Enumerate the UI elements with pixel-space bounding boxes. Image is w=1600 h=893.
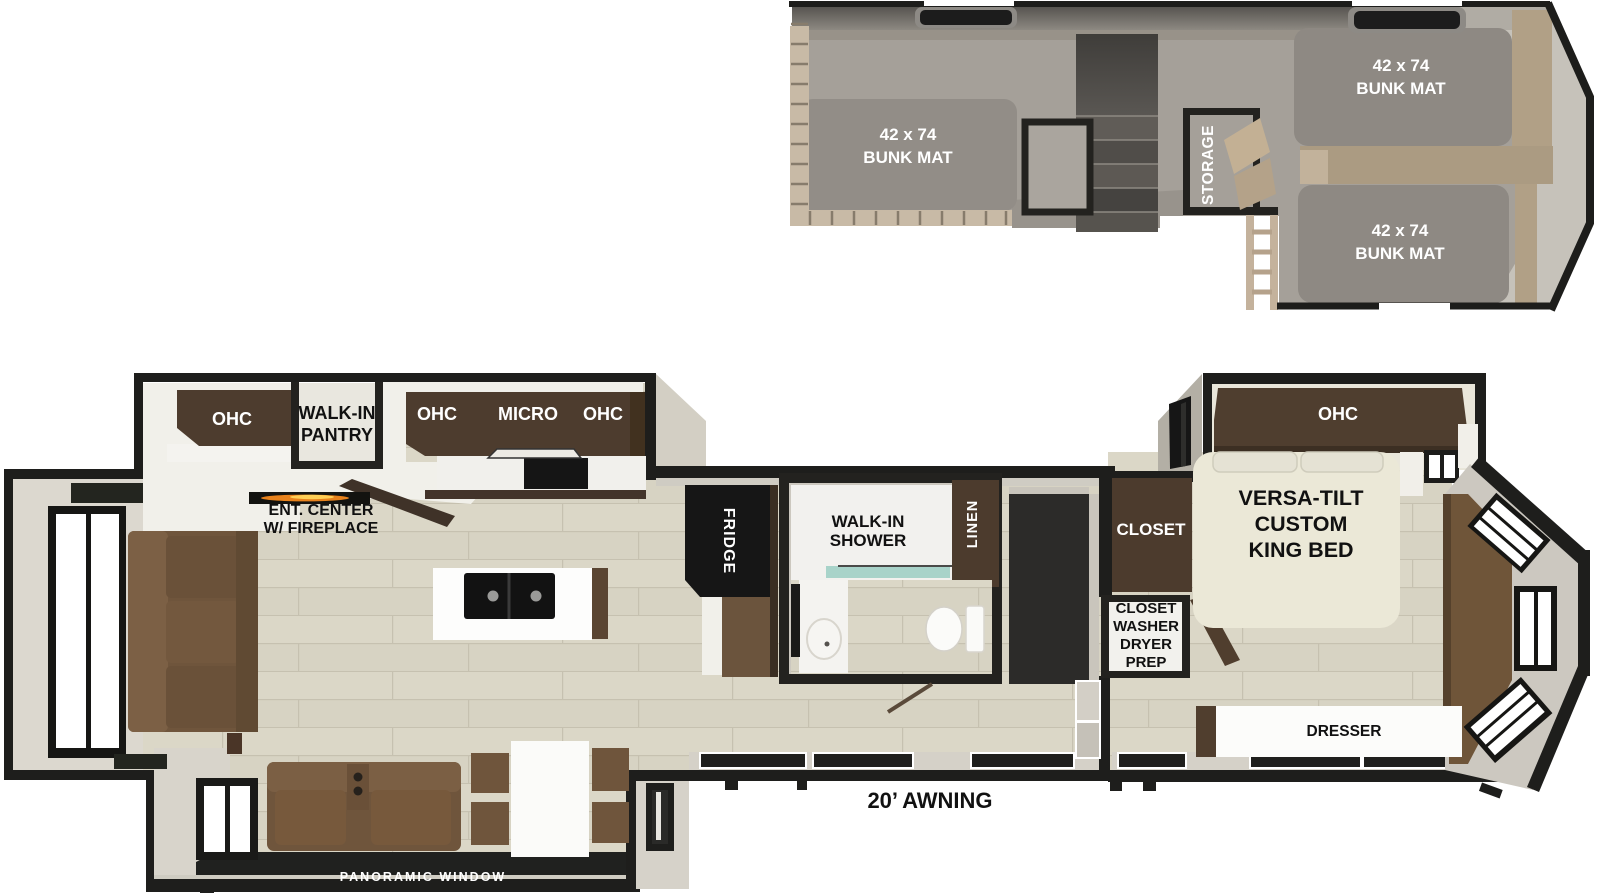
svg-text:DRYER: DRYER	[1120, 636, 1172, 653]
svg-text:42 x 74: 42 x 74	[880, 125, 937, 144]
svg-text:WASHER: WASHER	[1113, 618, 1179, 635]
svg-text:OHC: OHC	[1318, 404, 1358, 424]
svg-text:STORAGE: STORAGE	[1200, 125, 1217, 205]
svg-text:20’ AWNING: 20’ AWNING	[867, 788, 992, 813]
svg-text:BUNK MAT: BUNK MAT	[863, 148, 953, 167]
svg-text:VERSA-TILT: VERSA-TILT	[1238, 486, 1363, 510]
svg-text:KING BED: KING BED	[1248, 538, 1353, 562]
svg-text:SHOWER: SHOWER	[830, 531, 907, 550]
svg-text:CLOSET: CLOSET	[1116, 600, 1177, 617]
svg-text:MICRO: MICRO	[498, 404, 558, 424]
svg-text:WALK-IN: WALK-IN	[299, 403, 376, 423]
svg-text:FRIDGE: FRIDGE	[720, 508, 737, 574]
svg-text:PREP: PREP	[1126, 654, 1167, 671]
svg-text:PANORAMIC WINDOW: PANORAMIC WINDOW	[340, 870, 506, 884]
svg-text:W/ FIREPLACE: W/ FIREPLACE	[264, 520, 379, 537]
svg-text:42 x 74: 42 x 74	[1373, 56, 1430, 75]
svg-text:WALK-IN: WALK-IN	[832, 512, 905, 531]
svg-text:CLOSET: CLOSET	[1117, 520, 1187, 539]
svg-text:BUNK MAT: BUNK MAT	[1356, 79, 1446, 98]
svg-text:42 x 74: 42 x 74	[1372, 221, 1429, 240]
svg-text:PANTRY: PANTRY	[301, 425, 373, 445]
svg-text:ENT. CENTER: ENT. CENTER	[269, 502, 374, 519]
svg-text:DRESSER: DRESSER	[1307, 723, 1382, 740]
svg-text:LINEN: LINEN	[965, 500, 981, 549]
svg-text:OHC: OHC	[212, 409, 252, 429]
svg-text:BUNK MAT: BUNK MAT	[1355, 244, 1445, 263]
svg-text:OHC: OHC	[583, 404, 623, 424]
svg-text:OHC: OHC	[417, 404, 457, 424]
svg-text:CUSTOM: CUSTOM	[1255, 512, 1348, 536]
